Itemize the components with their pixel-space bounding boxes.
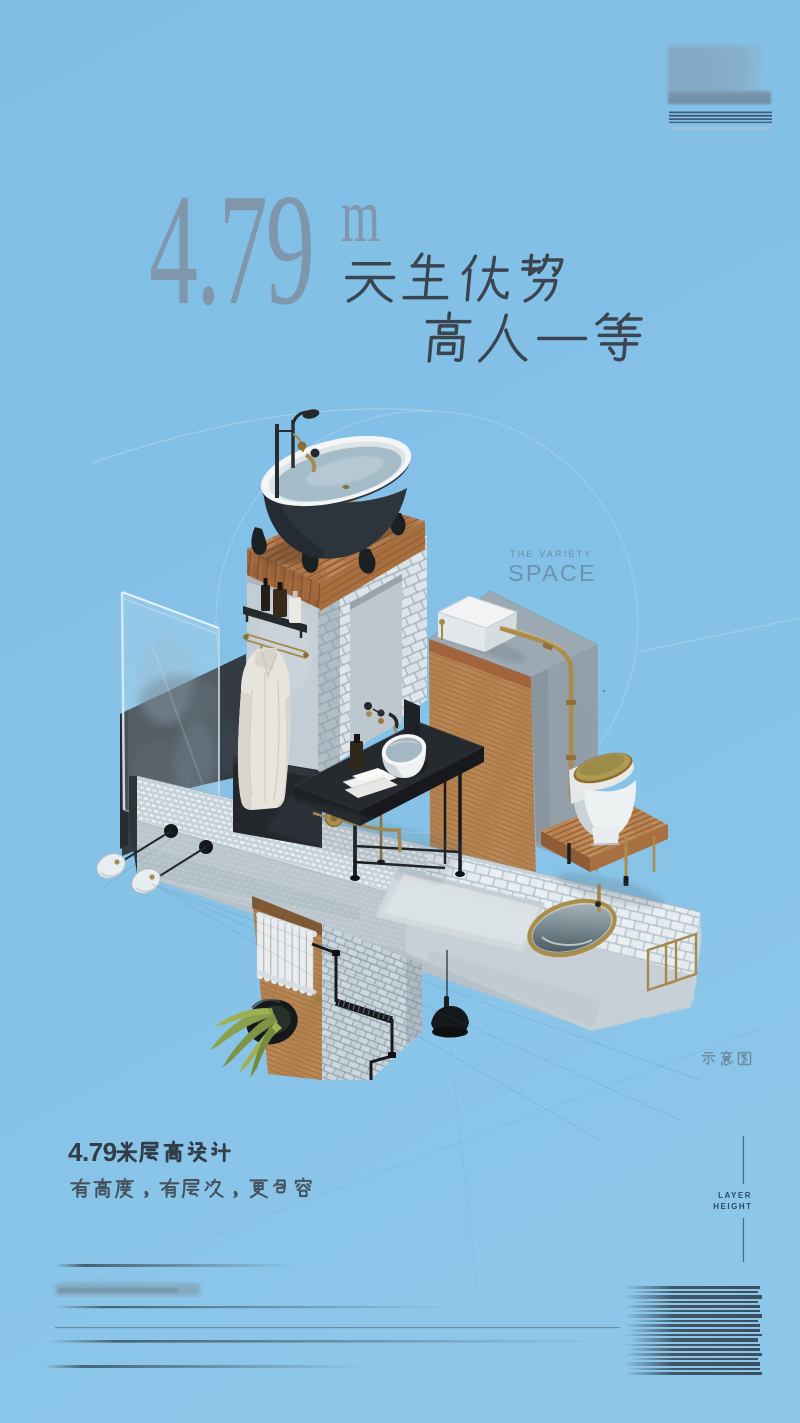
svg-text:4.79: 4.79 — [149, 161, 313, 338]
svg-text:LAYER: LAYER — [718, 1191, 752, 1200]
svg-text:SPACE: SPACE — [508, 560, 597, 586]
svg-text:4.79: 4.79 — [68, 1137, 117, 1167]
svg-text:THE VARIETY: THE VARIETY — [510, 549, 593, 559]
svg-text:HEIGHT: HEIGHT — [713, 1202, 752, 1211]
svg-text:m: m — [341, 174, 380, 258]
